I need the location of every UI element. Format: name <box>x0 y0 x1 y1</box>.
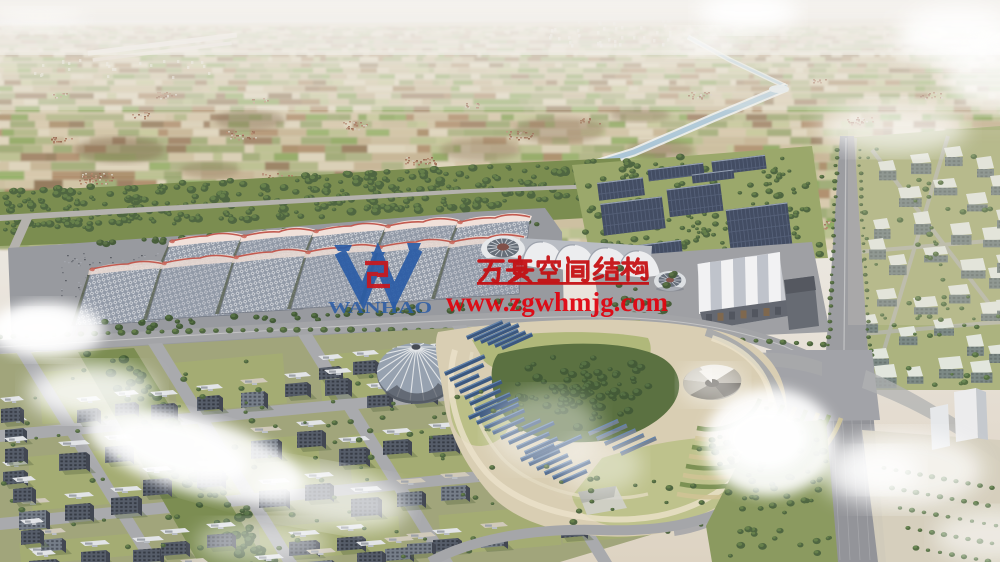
svg-text:www.zgwhmjg.com: www.zgwhmjg.com <box>446 287 669 317</box>
svg-text:WANHAO: WANHAO <box>328 298 432 317</box>
